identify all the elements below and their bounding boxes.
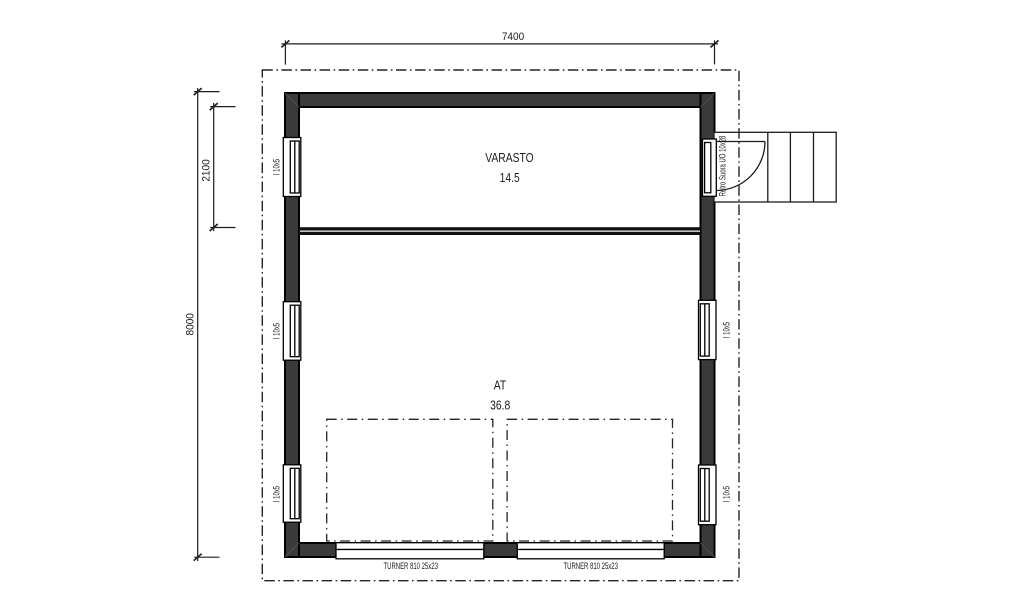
svg-text:TURNER 810 25x23: TURNER 810 25x23 [563,561,618,572]
svg-text:I 10x5: I 10x5 [271,485,282,502]
svg-text:I 10x5: I 10x5 [271,322,282,339]
svg-text:AT: AT [494,380,506,393]
svg-text:I 10x5: I 10x5 [721,321,732,338]
svg-text:8000: 8000 [185,313,196,336]
svg-text:I 10x5: I 10x5 [271,158,282,175]
svg-text:36.8: 36.8 [490,400,510,413]
svg-text:TURNER 810 25x23: TURNER 810 25x23 [383,561,438,572]
svg-text:I 10x5: I 10x5 [721,485,732,502]
svg-text:2100: 2100 [201,159,212,182]
svg-text:7400: 7400 [502,32,525,43]
svg-text:Retro Suora UO 10x28: Retro Suora UO 10x28 [717,135,728,196]
svg-text:VARASTO: VARASTO [485,152,533,165]
svg-text:14.5: 14.5 [500,172,520,185]
